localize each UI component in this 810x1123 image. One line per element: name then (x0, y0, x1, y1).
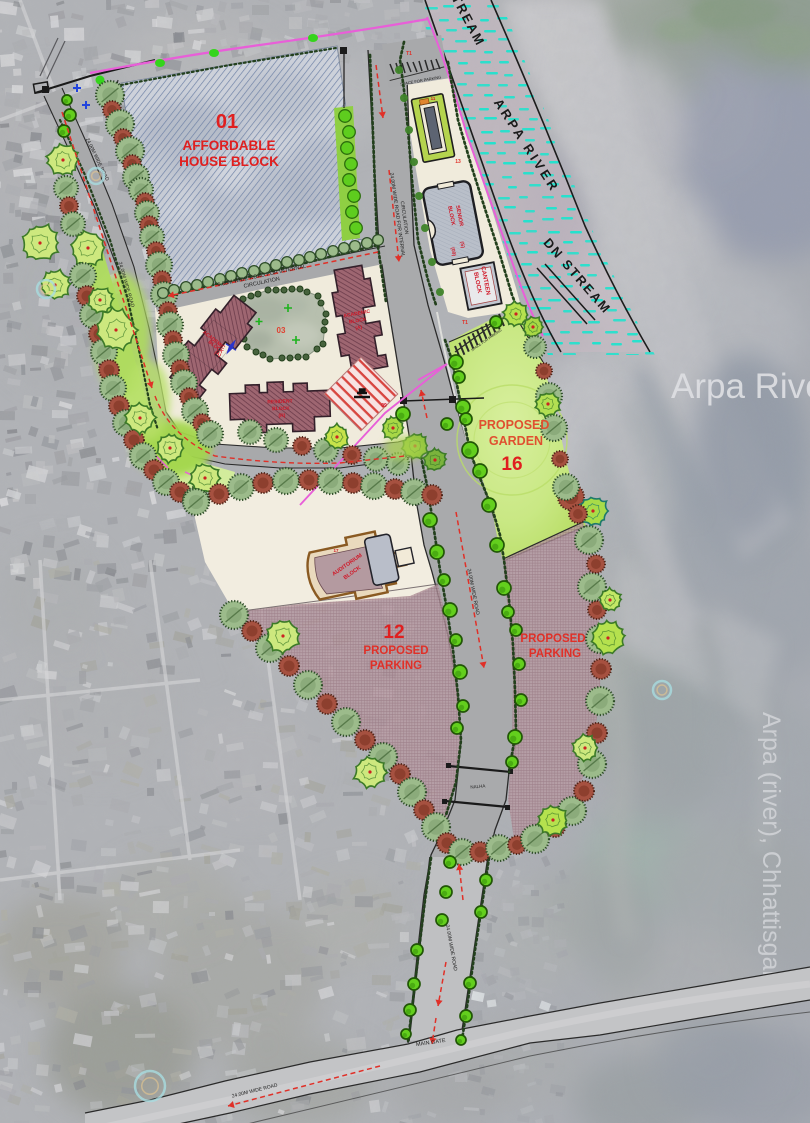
svg-text:HOUSE BLOCK: HOUSE BLOCK (179, 154, 279, 169)
svg-text:T1: T1 (462, 320, 468, 326)
svg-text:PARKING: PARKING (370, 660, 422, 672)
svg-text:17: 17 (333, 548, 339, 553)
svg-text:PROPOSED: PROPOSED (520, 633, 585, 645)
svg-text:RESIDENT: RESIDENT (267, 399, 292, 406)
svg-text:Arpa River: Arpa River (671, 367, 810, 406)
svg-text:T1: T1 (406, 51, 412, 57)
svg-text:PROPOSED: PROPOSED (363, 645, 428, 657)
svg-text:03: 03 (277, 326, 286, 335)
svg-text:PROPOSED: PROPOSED (479, 418, 550, 432)
svg-text:BLOCK: BLOCK (272, 406, 290, 413)
svg-text:(A): (A) (355, 324, 363, 331)
svg-text:Arpa (river), Chhattisgarh: Arpa (river), Chhattisgarh (757, 712, 785, 993)
svg-text:(R): (R) (278, 413, 285, 419)
svg-text:01: 01 (216, 111, 238, 133)
svg-text:AFFORDABLE: AFFORDABLE (183, 138, 276, 153)
svg-text:16: 16 (501, 454, 522, 475)
svg-text:11: 11 (431, 96, 436, 101)
svg-text:12: 12 (383, 622, 404, 643)
svg-text:GARDEN: GARDEN (489, 434, 543, 448)
svg-text:PARKING: PARKING (529, 648, 581, 660)
svg-text:09: 09 (381, 403, 387, 409)
svg-text:13: 13 (455, 159, 461, 165)
